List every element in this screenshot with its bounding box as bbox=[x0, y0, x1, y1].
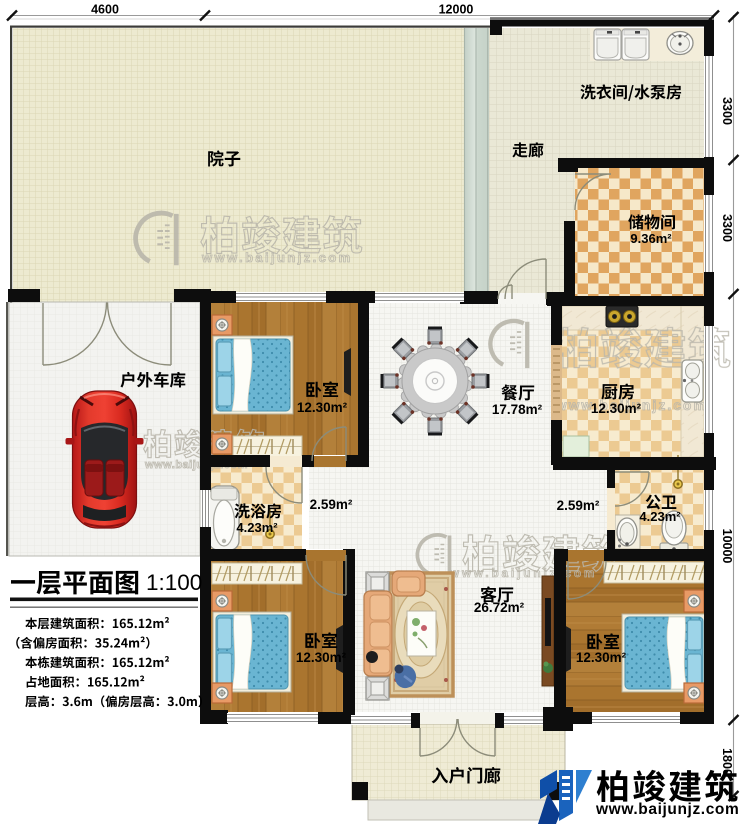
svg-text:12.30m²: 12.30m² bbox=[576, 650, 627, 665]
svg-text:12.30m²: 12.30m² bbox=[296, 650, 347, 665]
svg-text:2.59m²: 2.59m² bbox=[310, 497, 353, 512]
svg-text:1:100: 1:100 bbox=[146, 570, 202, 595]
svg-text:9.36m²: 9.36m² bbox=[630, 231, 672, 246]
svg-text:4600: 4600 bbox=[91, 3, 119, 17]
svg-text:3300: 3300 bbox=[720, 97, 734, 125]
svg-text:26.72m²: 26.72m² bbox=[474, 600, 525, 615]
svg-text:www.baijunjz.com: www.baijunjz.com bbox=[595, 801, 739, 818]
svg-text:12.30m²: 12.30m² bbox=[591, 401, 642, 416]
svg-text:3300: 3300 bbox=[720, 214, 734, 242]
svg-text:17.78m²: 17.78m² bbox=[492, 402, 543, 417]
svg-text:12000: 12000 bbox=[439, 3, 474, 17]
svg-text:www.baijunjz.com: www.baijunjz.com bbox=[201, 250, 353, 265]
svg-text:2.59m²: 2.59m² bbox=[557, 498, 600, 513]
svg-text:12.30m²: 12.30m² bbox=[297, 400, 348, 415]
svg-text:www.baijunjz.com: www.baijunjz.com bbox=[449, 568, 597, 580]
svg-text:4.23m²: 4.23m² bbox=[236, 520, 278, 535]
svg-text:4.23m²: 4.23m² bbox=[639, 509, 681, 524]
svg-text:10000: 10000 bbox=[720, 529, 734, 564]
